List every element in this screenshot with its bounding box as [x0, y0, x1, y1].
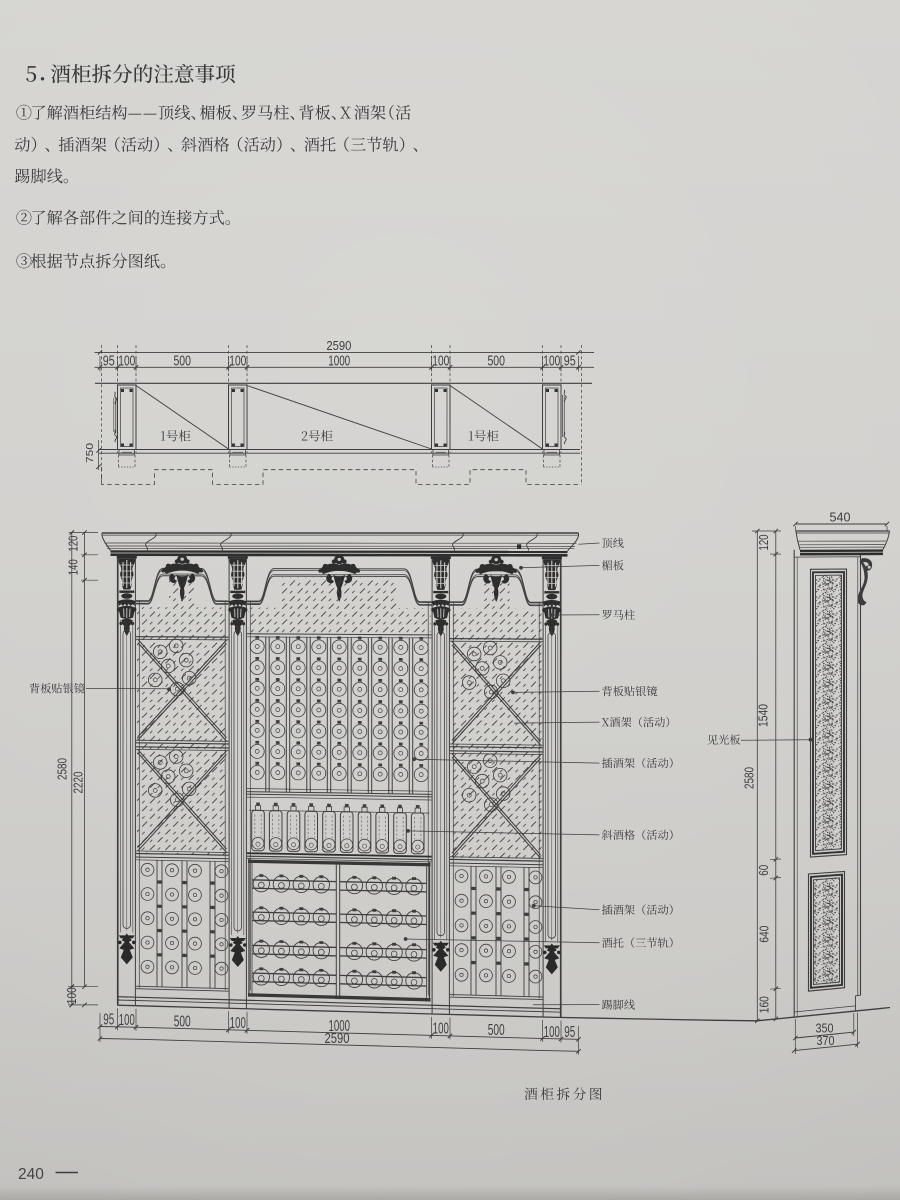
- svg-text:2590: 2590: [325, 1031, 350, 1047]
- svg-text:500: 500: [174, 1014, 191, 1031]
- svg-text:100: 100: [230, 1015, 246, 1032]
- svg-text:100: 100: [65, 987, 79, 1004]
- svg-text:1000: 1000: [328, 354, 350, 370]
- svg-text:140: 140: [65, 559, 80, 575]
- svg-text:95: 95: [564, 354, 576, 370]
- svg-text:2590: 2590: [326, 338, 351, 353]
- svg-text:100: 100: [432, 354, 449, 370]
- svg-text:100: 100: [543, 354, 560, 370]
- svg-text:240: 240: [18, 1166, 44, 1183]
- svg-text:100: 100: [118, 354, 135, 370]
- svg-text:500: 500: [487, 354, 505, 370]
- svg-text:95: 95: [103, 354, 115, 370]
- svg-text:100: 100: [229, 354, 246, 370]
- svg-text:2580: 2580: [742, 767, 757, 789]
- svg-text:120: 120: [756, 535, 771, 551]
- svg-text:100: 100: [544, 1024, 560, 1041]
- svg-text:2220: 2220: [71, 772, 86, 794]
- svg-text:2580: 2580: [55, 758, 70, 780]
- svg-text:540: 540: [830, 509, 851, 524]
- svg-text:640: 640: [756, 926, 771, 943]
- svg-text:370: 370: [817, 1033, 835, 1048]
- svg-text:750: 750: [84, 443, 96, 463]
- svg-text:60: 60: [756, 865, 771, 876]
- svg-text:500: 500: [488, 1022, 505, 1039]
- svg-text:95: 95: [564, 1024, 575, 1041]
- svg-text:100: 100: [433, 1021, 449, 1038]
- svg-text:160: 160: [756, 996, 771, 1013]
- svg-text:95: 95: [103, 1012, 114, 1029]
- svg-text:500: 500: [173, 354, 191, 370]
- svg-text:100: 100: [119, 1012, 135, 1029]
- svg-text:1540: 1540: [756, 704, 771, 727]
- svg-text:120: 120: [65, 536, 80, 552]
